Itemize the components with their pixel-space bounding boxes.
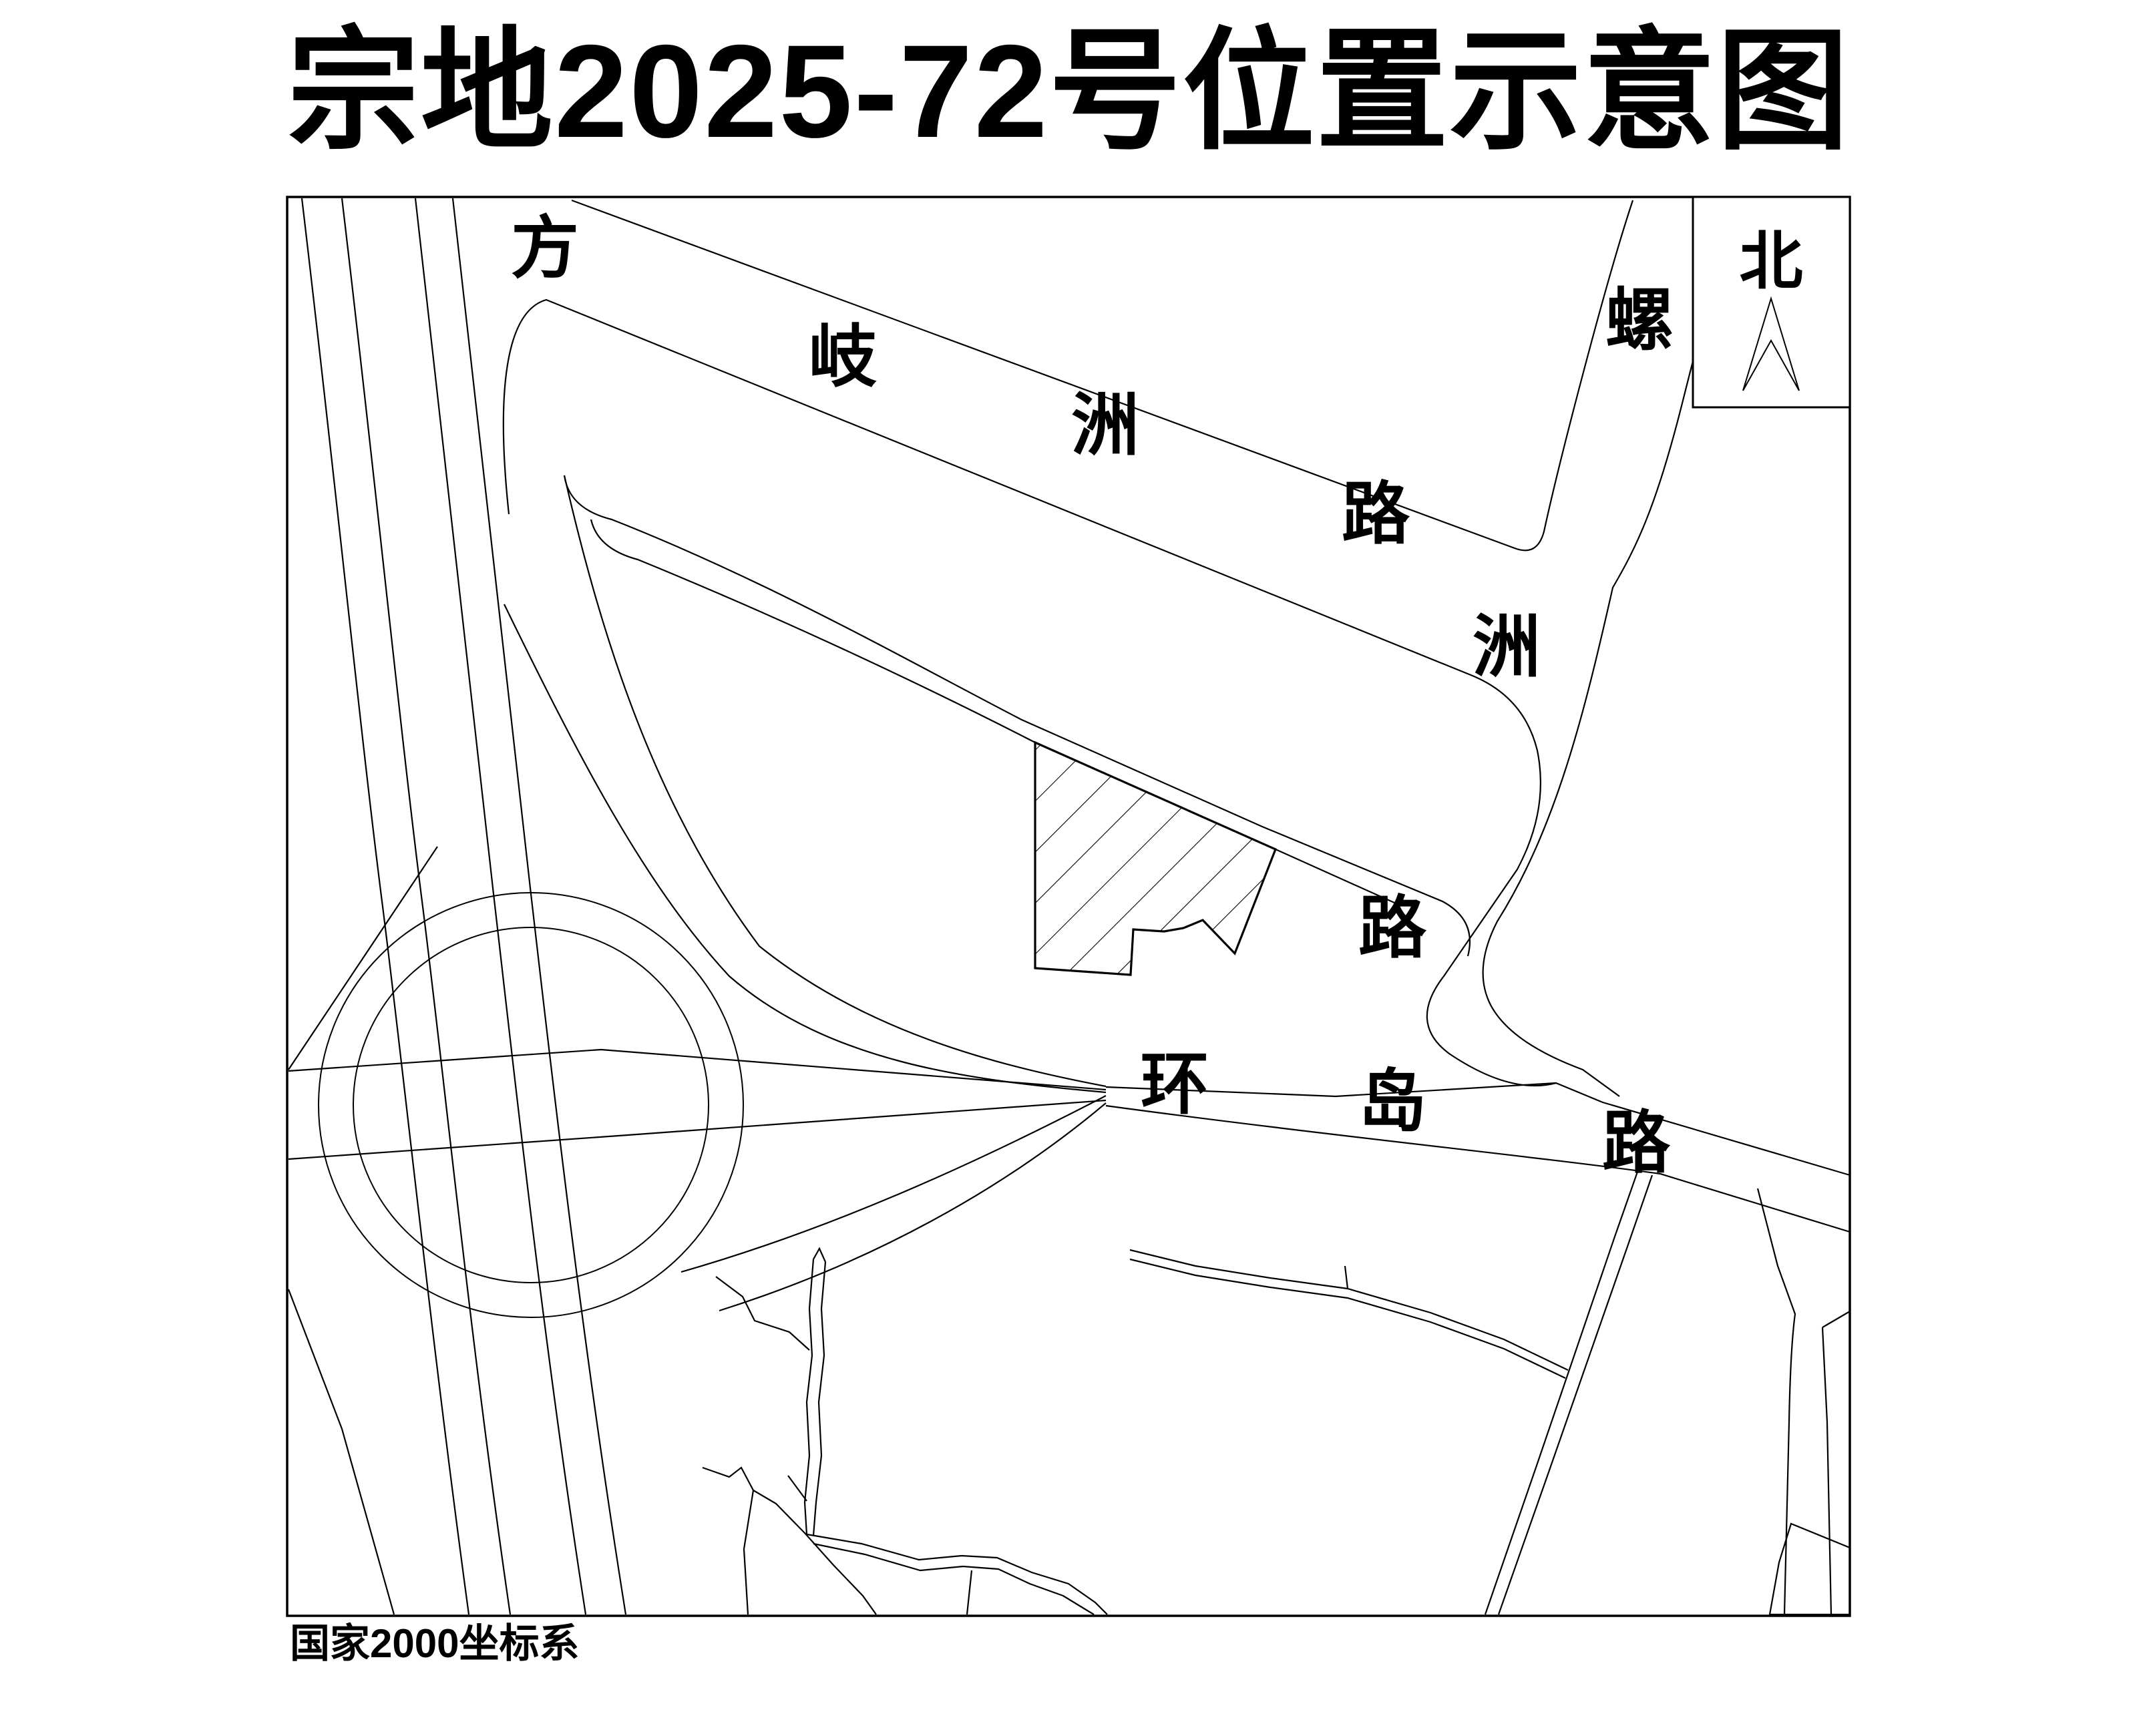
- block-north-lane-upper-line: [564, 475, 1470, 956]
- bottom-parcel-stub: [967, 1570, 972, 1614]
- highway-sw-ramp-line: [288, 1289, 394, 1614]
- subject-parcel-hatched: [1035, 742, 1276, 975]
- se-branch-road-west-edge: [1758, 1188, 1795, 1614]
- jagged-boundary-west: [703, 1468, 753, 1490]
- southeast-roads: [1485, 1172, 1850, 1614]
- ramp-lower-outer-curve: [681, 1096, 1106, 1272]
- huandao-west-south-edge: [288, 1100, 1106, 1159]
- road-label-luozhou-char-2: 洲: [1473, 609, 1541, 685]
- road-label-huandao-char-2: 岛: [1358, 1064, 1426, 1140]
- road-label-fangqizhou-char-3: 洲: [1071, 387, 1139, 463]
- road-label-fangqizhou-char-4: 路: [1342, 476, 1410, 552]
- huandao-east-north-edge: [1106, 1083, 1850, 1175]
- ramp-upper-inner-curve: [564, 475, 1106, 1086]
- corner-parcel-outline: [1770, 1524, 1850, 1614]
- block-north-lane-lower-line: [591, 519, 1394, 903]
- village-lane-top-tick: [813, 1249, 825, 1262]
- road-label-luozhou-char-1: 螺: [1605, 282, 1674, 359]
- huandao-west-north-edge: [288, 1050, 1106, 1090]
- jagged-boundary-east-upper: [1130, 1250, 1568, 1370]
- sketch-map-page: 宗地2025-72号位置示意图: [0, 0, 2137, 1736]
- jagged-boundary-northwest: [716, 1277, 809, 1350]
- road-label-luozhou-char-3: 路: [1358, 890, 1427, 966]
- diagonal-lane-east-edge: [1499, 1175, 1652, 1614]
- se-branch-road-spur: [1822, 1311, 1850, 1327]
- road-label-fangqizhou-char-1: 方: [511, 210, 579, 286]
- north-label: 北: [1739, 226, 1802, 297]
- interchange-west-ramp-line: [288, 847, 437, 1070]
- road-label-huandao-char-3: 路: [1602, 1105, 1671, 1181]
- ramp-upper-outer-curve: [504, 604, 1106, 1092]
- footpath-north-line: [807, 1534, 1107, 1614]
- roundabout-outer-circle: [319, 893, 743, 1317]
- highway-line-2: [342, 198, 510, 1614]
- road-label-fangqizhou-char-2: 岐: [809, 319, 877, 395]
- junction-ramps: [504, 475, 1106, 1311]
- village-parcels: [703, 1249, 1568, 1614]
- ramp-lower-inner-curve: [719, 1103, 1106, 1311]
- fangqizhou-road-south-edge: [504, 300, 1556, 1086]
- village-lane-east-edge: [813, 1262, 825, 1536]
- map-canvas: 北 方 岐 洲 路 螺 洲 路 环 岛 路 国家2000坐标系: [0, 0, 2137, 1736]
- left-parcel-north-stub: [788, 1476, 807, 1501]
- diagonal-lane-west-edge: [1485, 1172, 1637, 1614]
- road-label-huandao-char-1: 环: [1141, 1046, 1209, 1122]
- highway-line-4: [453, 198, 626, 1614]
- village-lane-west-edge: [805, 1259, 813, 1534]
- se-branch-road-east-edge: [1822, 1327, 1831, 1614]
- huandao-east-south-edge: [1106, 1106, 1850, 1232]
- left-parcel-west-edge: [744, 1490, 753, 1614]
- highway-line-1: [302, 198, 469, 1614]
- coordinate-system-note: 国家2000坐标系: [290, 1621, 579, 1666]
- jagged-boundary-east-lower: [1130, 1259, 1565, 1378]
- jagged-boundary-tick: [1345, 1266, 1348, 1289]
